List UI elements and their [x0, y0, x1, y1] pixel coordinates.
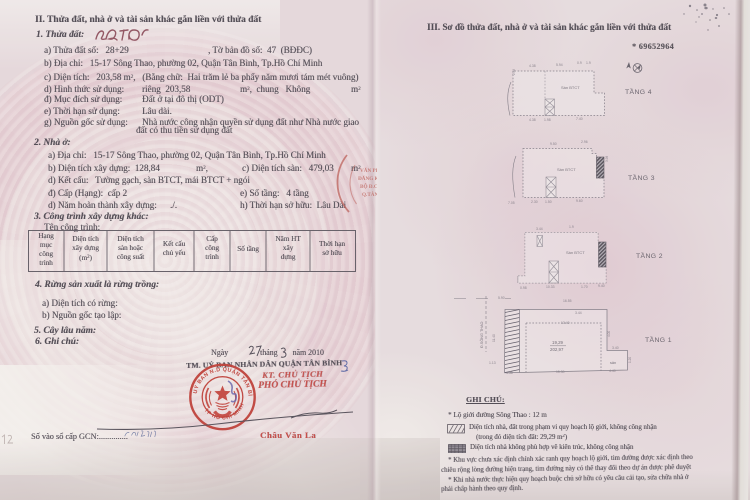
- svg-text:1.20: 1.20: [628, 357, 632, 363]
- svg-text:4.38: 4.38: [529, 118, 536, 122]
- svg-text:4.00: 4.00: [607, 331, 611, 337]
- svg-text:1.9: 1.9: [586, 61, 591, 65]
- svg-text:3.44: 3.44: [536, 227, 543, 231]
- svg-text:3.40: 3.40: [612, 346, 619, 350]
- svg-text:0.98: 0.98: [520, 286, 527, 290]
- svg-text:BỘ Đ.C: BỘ Đ.C: [360, 182, 377, 190]
- svg-text:9.50: 9.50: [550, 142, 557, 146]
- svg-text:VĂN PH: VĂN PH: [360, 166, 377, 174]
- svg-text:202,97: 202,97: [550, 347, 564, 352]
- svg-text:Sàn BTCT: Sàn BTCT: [557, 167, 576, 172]
- svg-text:7.05: 7.05: [508, 201, 515, 205]
- svg-text:11.40: 11.40: [492, 334, 496, 342]
- svg-text:4.38: 4.38: [529, 64, 536, 68]
- svg-text:Sàn BTCT: Sàn BTCT: [566, 250, 585, 255]
- svg-text:10.33: 10.33: [546, 285, 555, 289]
- svg-text:13.40: 13.40: [561, 321, 570, 325]
- svg-text:4.40: 4.40: [609, 369, 616, 373]
- svg-text:2.39: 2.39: [512, 69, 516, 75]
- svg-text:1.50: 1.50: [545, 200, 552, 204]
- svg-text:TẦNG 4: TẦNG 4: [625, 86, 652, 96]
- svg-text:sân: sân: [610, 361, 616, 365]
- svg-text:ĐĂNG K: ĐĂNG K: [358, 174, 377, 182]
- svg-text:TẦNG 3: TẦNG 3: [628, 172, 655, 182]
- svg-text:9.40: 9.40: [598, 284, 605, 288]
- svg-text:2.96: 2.96: [581, 140, 588, 144]
- svg-text:Q.TÂN: Q.TÂN: [362, 190, 377, 198]
- svg-text:7.40: 7.40: [576, 117, 583, 121]
- svg-text:1.9: 1.9: [569, 225, 574, 229]
- svg-text:1.98: 1.98: [544, 118, 551, 122]
- svg-text:16.55: 16.55: [563, 299, 572, 303]
- svg-text:TẦNG 1: TẦNG 1: [645, 334, 672, 344]
- svg-text:5.90: 5.90: [498, 296, 505, 300]
- svg-text:1.70: 1.70: [581, 285, 588, 289]
- svg-text:1.13: 1.13: [489, 361, 496, 365]
- svg-text:3.44: 3.44: [575, 311, 582, 315]
- svg-text:TẦNG 2: TẦNG 2: [636, 250, 663, 260]
- svg-text:Sàn BTCT: Sàn BTCT: [561, 85, 580, 90]
- svg-text:5.94: 5.94: [556, 63, 563, 67]
- svg-text:4.38: 4.38: [506, 371, 513, 375]
- svg-text:15.30: 15.30: [556, 370, 565, 374]
- svg-text:9.60: 9.60: [576, 199, 583, 203]
- svg-text:3.98: 3.98: [605, 156, 609, 162]
- svg-text:2.30: 2.30: [531, 200, 538, 204]
- svg-text:Đ.SÔNG THAO: Đ.SÔNG THAO: [479, 321, 484, 348]
- svg-text:19,29: 19,29: [552, 340, 564, 345]
- svg-text:0.9: 0.9: [577, 61, 582, 65]
